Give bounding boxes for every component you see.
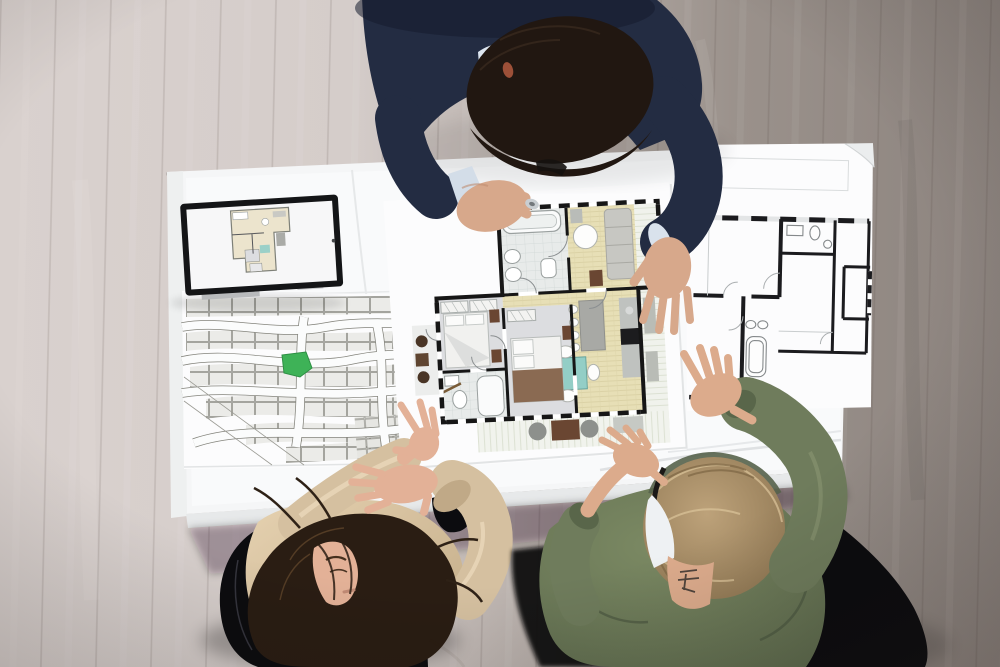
photo-recreation (0, 0, 1000, 667)
vignette-overlay (0, 0, 1000, 667)
